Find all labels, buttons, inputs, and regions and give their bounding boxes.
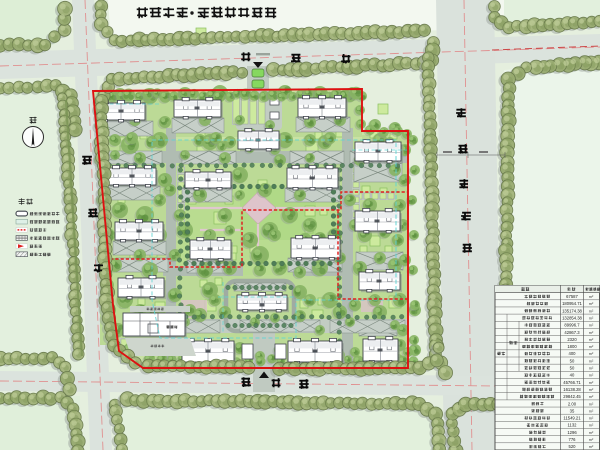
- svg-text:m²: m²: [589, 388, 594, 392]
- svg-text:45766.71: 45766.71: [563, 380, 581, 385]
- svg-text:m²: m²: [589, 431, 594, 435]
- svg-text:m²: m²: [589, 331, 594, 335]
- svg-text:m²: m²: [589, 309, 594, 313]
- svg-text:35: 35: [570, 408, 575, 413]
- svg-text:1132: 1132: [567, 423, 577, 428]
- svg-text:1800: 1800: [567, 344, 577, 349]
- svg-text:50: 50: [570, 366, 575, 371]
- svg-text:m²: m²: [589, 367, 594, 371]
- svg-text:776: 776: [569, 437, 577, 442]
- svg-text:89996.7: 89996.7: [564, 323, 580, 328]
- svg-text:m²: m²: [589, 438, 594, 442]
- svg-text:m²: m²: [589, 381, 594, 385]
- svg-text:m²: m²: [589, 395, 594, 399]
- svg-text:132854.38: 132854.38: [562, 315, 582, 320]
- svg-text:50: 50: [570, 358, 575, 363]
- svg-text:m²: m²: [589, 445, 594, 449]
- svg-text:m²: m²: [589, 409, 594, 413]
- svg-text:67587: 67587: [566, 294, 578, 299]
- svg-text:m²: m²: [589, 324, 594, 328]
- svg-text:40: 40: [570, 373, 575, 378]
- svg-text:2320: 2320: [567, 337, 577, 342]
- svg-text:520: 520: [569, 444, 577, 449]
- svg-text:180954.71: 180954.71: [562, 301, 582, 306]
- svg-text:m²: m²: [589, 374, 594, 378]
- svg-text:m²: m²: [589, 424, 594, 428]
- svg-text:11549.21: 11549.21: [563, 416, 581, 421]
- svg-text:135174.38: 135174.38: [562, 308, 582, 313]
- svg-text:m²: m²: [589, 345, 594, 349]
- svg-text:2.00: 2.00: [568, 401, 577, 406]
- svg-text:m²: m²: [589, 359, 594, 363]
- svg-text:m²: m²: [589, 417, 594, 421]
- svg-text:42867.3: 42867.3: [564, 330, 580, 335]
- svg-text:400: 400: [569, 351, 577, 356]
- svg-text:m²: m²: [589, 302, 594, 306]
- svg-text:m²: m²: [589, 338, 594, 342]
- svg-text:m²: m²: [589, 402, 594, 406]
- svg-text:16138.28: 16138.28: [563, 387, 581, 392]
- svg-text:1296: 1296: [567, 430, 577, 435]
- svg-text:m²: m²: [589, 316, 594, 320]
- svg-text:29842.45: 29842.45: [563, 394, 581, 399]
- svg-text:m²: m²: [589, 352, 594, 356]
- svg-text:m²: m²: [589, 295, 594, 299]
